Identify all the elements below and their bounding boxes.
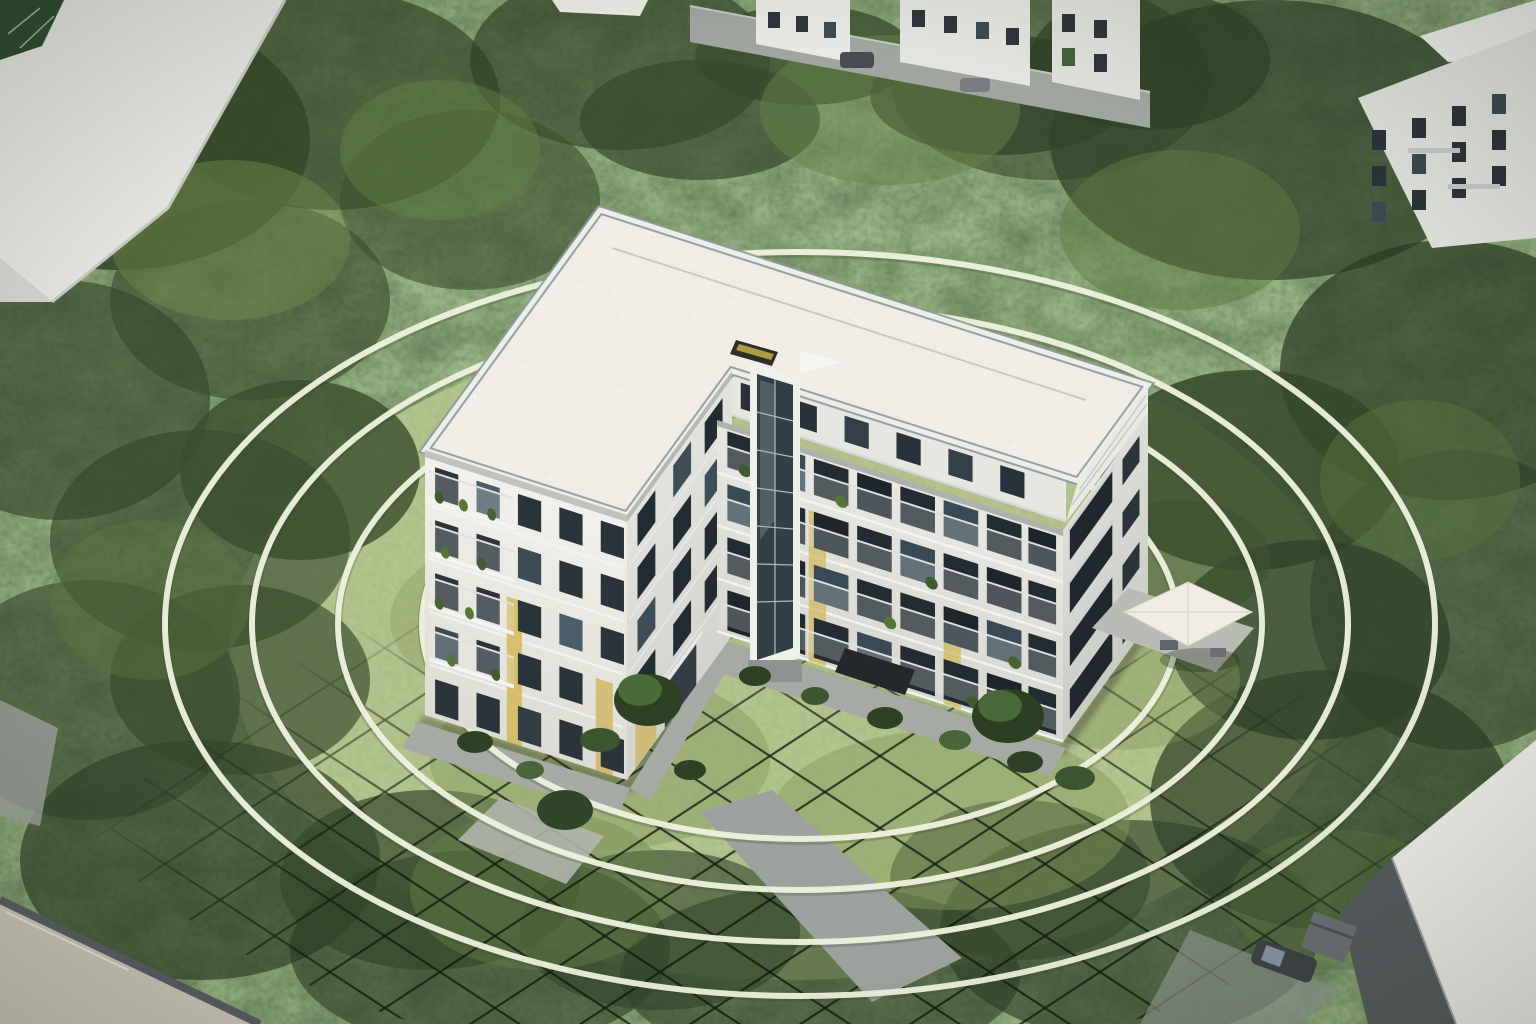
aerial-scene-svg (0, 0, 1536, 1024)
aerial-scene (0, 0, 1536, 1024)
vignette (0, 0, 1536, 1024)
